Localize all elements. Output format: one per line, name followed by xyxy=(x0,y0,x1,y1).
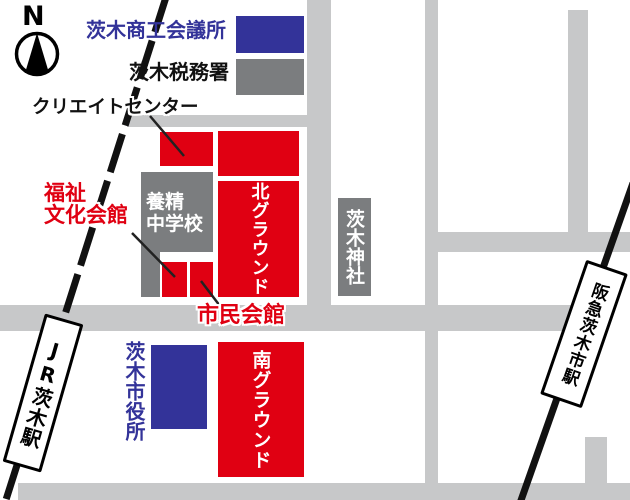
ibaraki-shrine-label: 茨木神社 xyxy=(338,198,371,296)
welfare-culture-hall-building xyxy=(162,262,187,297)
welfare-label-line2: 文化会館 xyxy=(44,203,128,227)
welfare-culture-hall-label: 福祉 文化会館 xyxy=(44,182,128,227)
hankyu-ibarakishi-station: 阪急茨木市駅 xyxy=(540,260,628,409)
yosei-junior-high-label: 養精 中学校 xyxy=(146,192,203,236)
road-horizontal-bottom xyxy=(18,483,630,500)
jr-station-label: JR茨木駅 xyxy=(13,335,72,452)
compass-ring xyxy=(17,34,58,75)
city-hall-building xyxy=(151,345,207,429)
school-label-line2: 中学校 xyxy=(146,213,203,235)
compass-north-needle-icon xyxy=(25,33,49,73)
area-map: JR茨木駅 阪急茨木市駅 N 茨木商工会議所 茨木税務署 クリエイトセンター 福… xyxy=(0,0,630,500)
hankyu-station-label: 阪急茨木市駅 xyxy=(555,279,614,389)
compass xyxy=(17,33,58,75)
city-hall-label: 茨木市役所 xyxy=(124,341,144,441)
legend-label-chamber-of-commerce: 茨木商工会議所 xyxy=(86,20,226,42)
north-ground-label: 北グラウンド xyxy=(218,181,299,297)
south-ground-label: 南グラウンド xyxy=(218,342,304,477)
legend-label-tax-office: 茨木税務署 xyxy=(129,62,229,84)
create-center-label: クリエイトセンター xyxy=(32,98,199,118)
road-horizontal-middle xyxy=(0,305,590,331)
welfare-label-line1: 福祉 xyxy=(44,181,86,205)
civic-hall-label: 市民会館 xyxy=(197,304,285,328)
road-vertical-1 xyxy=(307,0,331,331)
north-ground-upper-block xyxy=(218,131,299,176)
civic-hall-building xyxy=(190,262,213,297)
school-label-line1: 養精 xyxy=(146,191,184,213)
create-center-building xyxy=(160,132,213,166)
road-horizontal-right xyxy=(425,232,630,252)
legend-swatch-tax-office xyxy=(236,59,304,95)
road-vertical-3 xyxy=(568,10,588,252)
yosei-junior-high-annex xyxy=(141,252,160,297)
legend-swatch-chamber xyxy=(236,16,304,53)
compass-north-label: N xyxy=(22,2,45,31)
jr-ibaraki-station: JR茨木駅 xyxy=(3,313,84,472)
